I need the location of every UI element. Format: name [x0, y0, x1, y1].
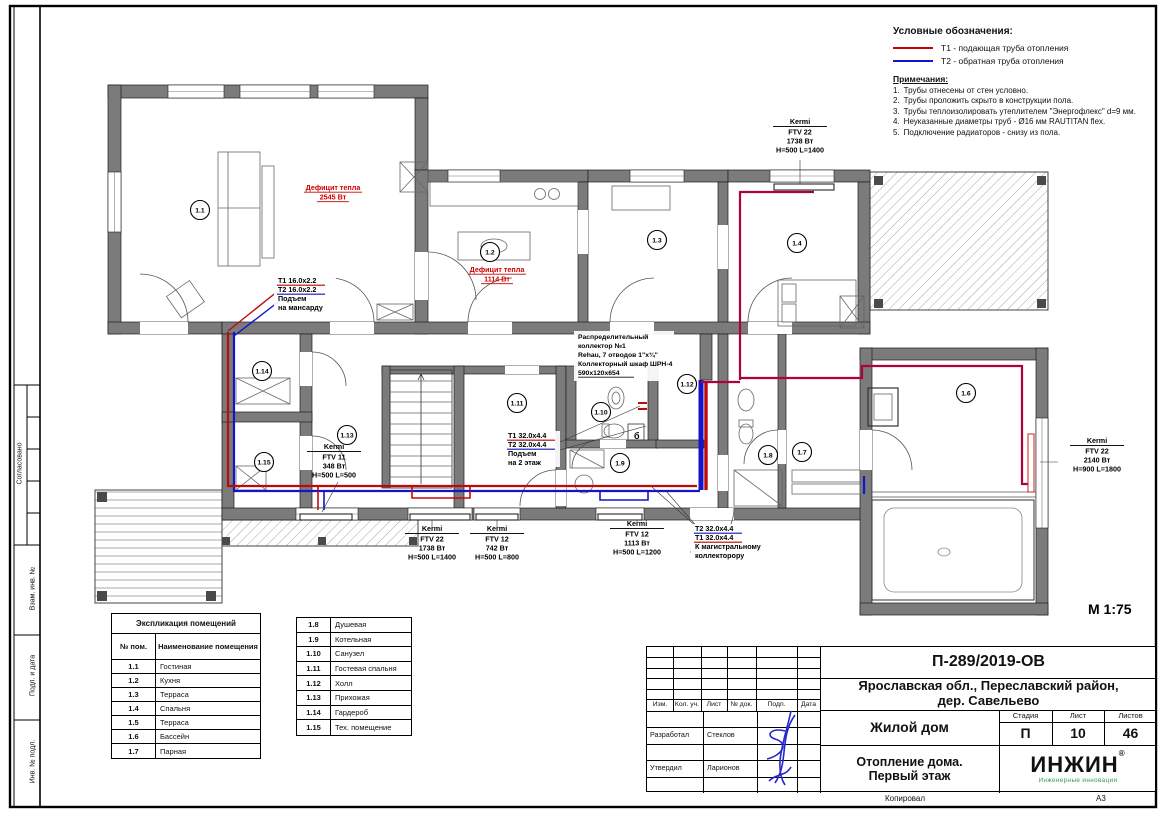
sheet-value: 10: [1052, 722, 1104, 745]
svg-text:1.4: 1.4: [792, 241, 802, 248]
svg-text:на мансарду: на мансарду: [278, 303, 323, 312]
svg-text:1.9: 1.9: [615, 461, 625, 468]
name-approved: Ларионов: [705, 760, 756, 777]
svg-text:H=900 L=1800: H=900 L=1800: [1073, 465, 1121, 474]
doc-number: П-289/2019-ОВ: [820, 647, 1157, 678]
svg-text:FTV 11: FTV 11: [322, 453, 345, 462]
pool: [872, 500, 1034, 600]
explication-rows-2: 1.8Душевая1.9Котельная1.10Санузел1.11Гос…: [297, 618, 411, 735]
pipe-line-sample: [893, 47, 933, 49]
col-data: Дата: [797, 699, 820, 711]
legend-item: Т2 - обратная труба отопления: [893, 56, 1157, 66]
title-block: Изм. Кол. уч. Лист № док. Подп. Дата Раз…: [646, 646, 1156, 792]
radiator: [410, 514, 470, 520]
table-row: 1.15Тех. помещение: [297, 720, 411, 735]
kitchen-counter: [430, 182, 578, 206]
name-developed: Стеклов: [705, 727, 756, 744]
svg-text:Rehau, 7 отводов 1"х¾": Rehau, 7 отводов 1"х¾": [578, 351, 658, 359]
col-header-num: № пом.: [112, 634, 156, 659]
object-name: Жилой дом: [820, 710, 999, 745]
svg-text:Коллекторный шкаф ШРН-4: Коллекторный шкаф ШРН-4: [578, 360, 673, 368]
svg-text:Дефицит тепла: Дефицит тепла: [470, 265, 526, 274]
svg-text:742 Вт: 742 Вт: [486, 544, 509, 553]
svg-text:Kermi: Kermi: [627, 519, 647, 528]
boiler-mark: б: [634, 431, 640, 441]
svg-text:1.3: 1.3: [652, 238, 662, 245]
svg-text:Kermi: Kermi: [422, 524, 442, 533]
svg-text:коллектор №1: коллектор №1: [578, 343, 626, 350]
format-label: А3: [1096, 794, 1106, 803]
explication-table-1: Экспликация помещений № пом. Наименовани…: [111, 613, 261, 759]
svg-text:Т2 32.0х4.4: Т2 32.0х4.4: [695, 524, 733, 533]
sofa: [218, 152, 260, 266]
role-developed: Разработал: [648, 727, 702, 744]
table-row: 1.12Холл: [297, 676, 411, 691]
svg-text:1.14: 1.14: [255, 369, 268, 376]
svg-text:590х120х654: 590х120х654: [578, 370, 620, 377]
col-izm: Изм.: [647, 699, 673, 711]
sheet-label: Лист: [1052, 710, 1104, 722]
svg-text:FTV 12: FTV 12: [625, 530, 649, 539]
scale-label: М 1:75: [1088, 601, 1132, 617]
legend-title: Условные обозначения:: [893, 26, 1157, 37]
svg-text:Подъем: Подъем: [278, 294, 306, 303]
svg-text:2545 Вт: 2545 Вт: [320, 193, 347, 202]
radiator: [774, 184, 834, 190]
table-row: 1.13Прихожая: [297, 691, 411, 706]
bed: [778, 280, 856, 326]
table-row: 1.10Санузел: [297, 647, 411, 662]
svg-text:FTV 22: FTV 22: [420, 535, 444, 544]
svg-text:К магистральному: К магистральному: [695, 542, 761, 551]
svg-text:1.10: 1.10: [594, 410, 607, 417]
svg-text:Дефицит тепла: Дефицит тепла: [306, 183, 362, 192]
svg-text:H=500 L=500: H=500 L=500: [312, 471, 356, 480]
side-stamp-podp: Подп. и дата: [30, 626, 37, 726]
svg-text:Подъем: Подъем: [508, 449, 536, 458]
radiator: [476, 514, 518, 520]
svg-text:Kermi: Kermi: [1087, 436, 1107, 445]
svg-text:FTV 12: FTV 12: [485, 535, 509, 544]
col-kol: Кол. уч.: [673, 699, 701, 711]
radiator-vertical: [1028, 434, 1034, 492]
table-row: 1.14Гардероб: [297, 706, 411, 721]
table-row: 1.9Котельная: [297, 633, 411, 648]
svg-text:348 Вт: 348 Вт: [323, 462, 346, 471]
terrace-top-right: [870, 172, 1048, 310]
svg-text:Т1 32.0х4.4: Т1 32.0х4.4: [508, 431, 546, 440]
table-row: 1.8Душевая: [297, 618, 411, 633]
svg-text:H=500 L=1200: H=500 L=1200: [613, 548, 661, 557]
svg-text:на 2 этаж: на 2 этаж: [508, 458, 542, 467]
svg-text:1.1: 1.1: [195, 208, 205, 215]
project-address: Ярославская обл., Переславский район, де…: [820, 678, 1157, 710]
svg-text:Kermi: Kermi: [324, 442, 344, 451]
stage-label: Стадия: [999, 710, 1052, 722]
side-stamp-agreed: Согласовано: [17, 414, 24, 514]
side-stamp-vzam: Взам. инв. №: [30, 539, 37, 639]
explication-rows: 1.1Гостиная1.2Кухня1.3Терраса1.4Спальня1…: [112, 660, 260, 758]
svg-text:Kermi: Kermi: [790, 117, 810, 126]
washbasin-2: [738, 389, 754, 411]
svg-text:1114 Вт: 1114 Вт: [484, 275, 510, 284]
svg-text:2140 Вт: 2140 Вт: [1084, 456, 1111, 465]
svg-text:Kermi: Kermi: [487, 524, 507, 533]
legend-items: Т1 - подающая труба отопленияТ2 - обратн…: [893, 43, 1157, 66]
legend-notes: 1. Трубы отнесены от стен условно.2. Тру…: [893, 86, 1157, 138]
svg-text:H=500 L=1400: H=500 L=1400: [408, 553, 456, 562]
svg-text:коллекторору: коллекторору: [695, 551, 744, 560]
sheets-value: 46: [1104, 722, 1157, 745]
note-item: 5. Подключение радиаторов - снизу из пол…: [893, 128, 1157, 138]
signature: [755, 703, 799, 789]
svg-text:FTV 22: FTV 22: [788, 128, 812, 137]
svg-text:1.7: 1.7: [797, 450, 807, 457]
note-item: 3. Трубы теплоизолировать утеплителем "Э…: [893, 107, 1157, 117]
table-row: 1.1Гостиная: [112, 660, 260, 674]
legend: Условные обозначения: Т1 - подающая труб…: [893, 26, 1157, 138]
stage-value: П: [999, 722, 1052, 745]
explication-title: Экспликация помещений: [112, 614, 260, 634]
logo-text: ИНЖИН®: [1030, 754, 1125, 776]
svg-text:1.8: 1.8: [763, 453, 773, 460]
svg-text:H=500 L=800: H=500 L=800: [475, 553, 519, 562]
company-logo: ИНЖИН® Инженерные инновации: [999, 745, 1157, 793]
radiator: [300, 514, 352, 520]
svg-text:Т1 32.0х4.4: Т1 32.0х4.4: [695, 533, 733, 542]
table-row: 1.5Терраса: [112, 716, 260, 730]
washbasin: [608, 387, 624, 409]
riser-pipe-bedroom: [740, 192, 814, 380]
svg-text:1.13: 1.13: [340, 433, 353, 440]
col-list: Лист: [701, 699, 727, 711]
side-stamp-inv: Инв. № подл.: [30, 712, 37, 812]
note-item: 1. Трубы отнесены от стен условно.: [893, 86, 1157, 96]
svg-text:1738 Вт: 1738 Вт: [419, 544, 446, 553]
svg-text:1738 Вт: 1738 Вт: [787, 137, 814, 146]
svg-text:1.15: 1.15: [257, 460, 270, 467]
svg-text:Т1 16.0х2.2: Т1 16.0х2.2: [278, 276, 316, 285]
table-row: 1.4Спальня: [112, 702, 260, 716]
sheet-title: Отопление дома. Первый этаж: [820, 745, 999, 793]
svg-text:1113 Вт: 1113 Вт: [624, 539, 650, 548]
legend-item: Т1 - подающая труба отопления: [893, 43, 1157, 53]
terrace-bottom-left: [95, 490, 222, 603]
svg-text:1.2: 1.2: [485, 250, 495, 257]
table-row: 1.6Бассейн: [112, 730, 260, 744]
notes-title: Примечания:: [893, 74, 1157, 84]
sheets-label: Листов: [1104, 710, 1157, 722]
role-approved: Утвердил: [648, 760, 702, 777]
note-item: 2. Трубы проложить скрыто в конструкции …: [893, 96, 1157, 106]
copied-label: Копировал: [850, 794, 960, 803]
svg-text:H=500 L=1400: H=500 L=1400: [776, 146, 824, 155]
svg-text:Распределительный: Распределительный: [578, 333, 648, 341]
pipe-line-sample: [893, 60, 933, 62]
svg-text:Т2 32.0х4.4: Т2 32.0х4.4: [508, 440, 546, 449]
side-table: [262, 166, 274, 258]
svg-text:Т2 16.0х2.2: Т2 16.0х2.2: [278, 285, 316, 294]
svg-text:1.12: 1.12: [680, 382, 693, 389]
table-row: 1.7Парная: [112, 744, 260, 758]
table-row: 1.3Терраса: [112, 688, 260, 702]
logo-subtext: Инженерные инновации: [1039, 777, 1118, 784]
col-doc: № док.: [727, 699, 756, 711]
note-item: 4. Неуказанные диаметры труб - Ø16 мм RA…: [893, 117, 1157, 127]
drawing-sheet: { "sheet": { "scale": "М 1:75", "copied"…: [0, 0, 1166, 816]
col-header-name: Наименование помещения: [156, 634, 260, 659]
table-row: 1.11Гостевая спальня: [297, 662, 411, 677]
svg-text:FTV 22: FTV 22: [1085, 447, 1109, 456]
toilet: [604, 424, 624, 438]
table-row: 1.2Кухня: [112, 674, 260, 688]
explication-table-2: 1.8Душевая1.9Котельная1.10Санузел1.11Гос…: [296, 617, 412, 736]
svg-text:1.11: 1.11: [511, 401, 524, 408]
svg-text:1.6: 1.6: [961, 391, 971, 398]
